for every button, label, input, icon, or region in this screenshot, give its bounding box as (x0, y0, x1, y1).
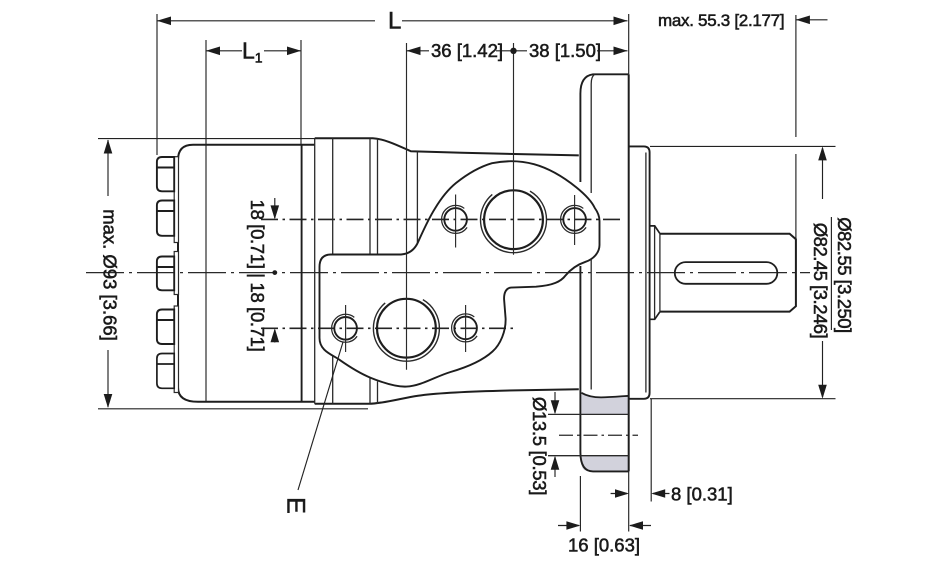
svg-text:18 [0.71] | 18 [0.71]: 18 [0.71] | 18 [0.71] (247, 200, 268, 352)
svg-text:8 [0.31]: 8 [0.31] (671, 484, 733, 505)
svg-text:Ø82.45 [3.246]: Ø82.45 [3.246] (810, 223, 831, 338)
svg-text:36 [1.42]: 36 [1.42] (431, 40, 503, 61)
svg-text:L: L (388, 8, 401, 35)
svg-text:max. 55.3 [2.177]: max. 55.3 [2.177] (658, 11, 784, 30)
svg-text:16 [0.63]: 16 [0.63] (568, 535, 640, 556)
svg-text:E: E (282, 497, 310, 514)
svg-text:Ø13.5 [0.53]: Ø13.5 [0.53] (529, 397, 550, 495)
svg-text:max. Ø93 [3.66]: max. Ø93 [3.66] (100, 209, 121, 341)
svg-text:38 [1.50]: 38 [1.50] (529, 40, 601, 61)
svg-text:Ø82.55 [3.250]: Ø82.55 [3.250] (834, 217, 855, 332)
